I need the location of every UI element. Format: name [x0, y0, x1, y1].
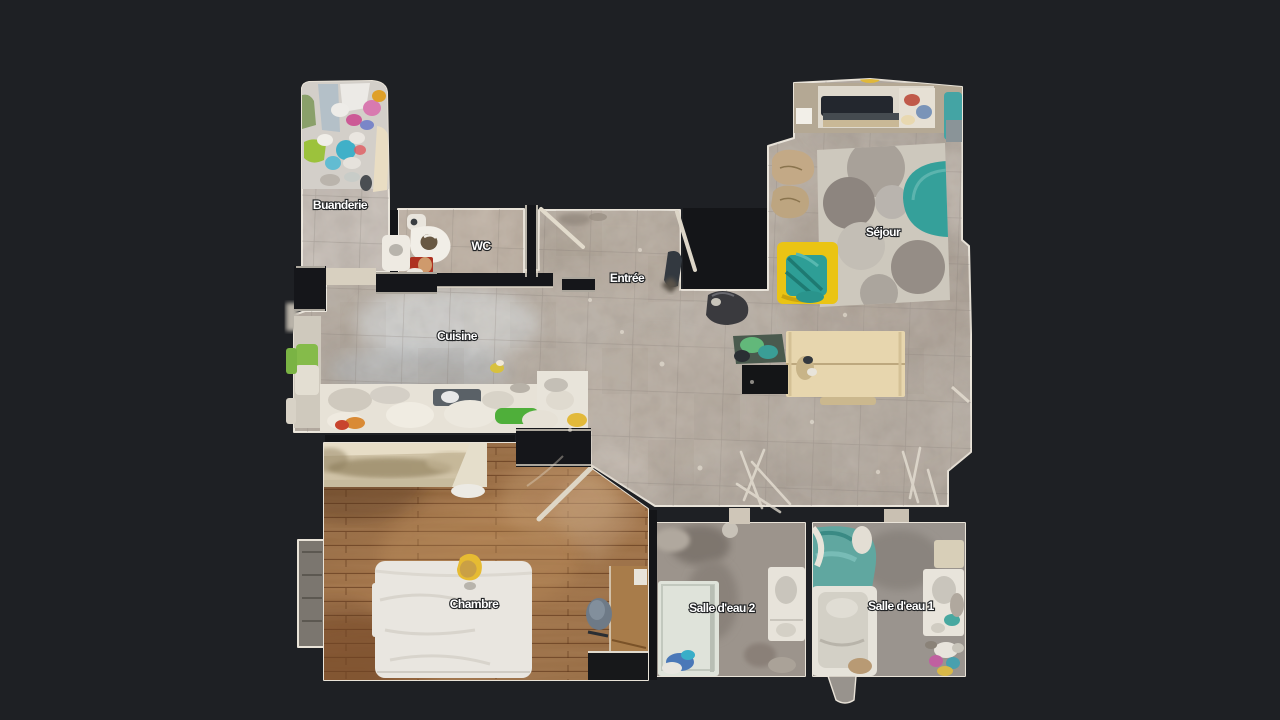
svg-text:Salle d'eau 1: Salle d'eau 1	[868, 599, 935, 613]
svg-text:Entrée: Entrée	[610, 271, 645, 285]
svg-text:Chambre: Chambre	[450, 597, 499, 611]
svg-text:Salle d'eau 2: Salle d'eau 2	[689, 601, 756, 615]
svg-text:Buanderie: Buanderie	[313, 198, 368, 212]
svg-text:Séjour: Séjour	[866, 225, 901, 239]
svg-text:WC: WC	[472, 239, 492, 253]
svg-text:Cuisine: Cuisine	[437, 329, 478, 343]
